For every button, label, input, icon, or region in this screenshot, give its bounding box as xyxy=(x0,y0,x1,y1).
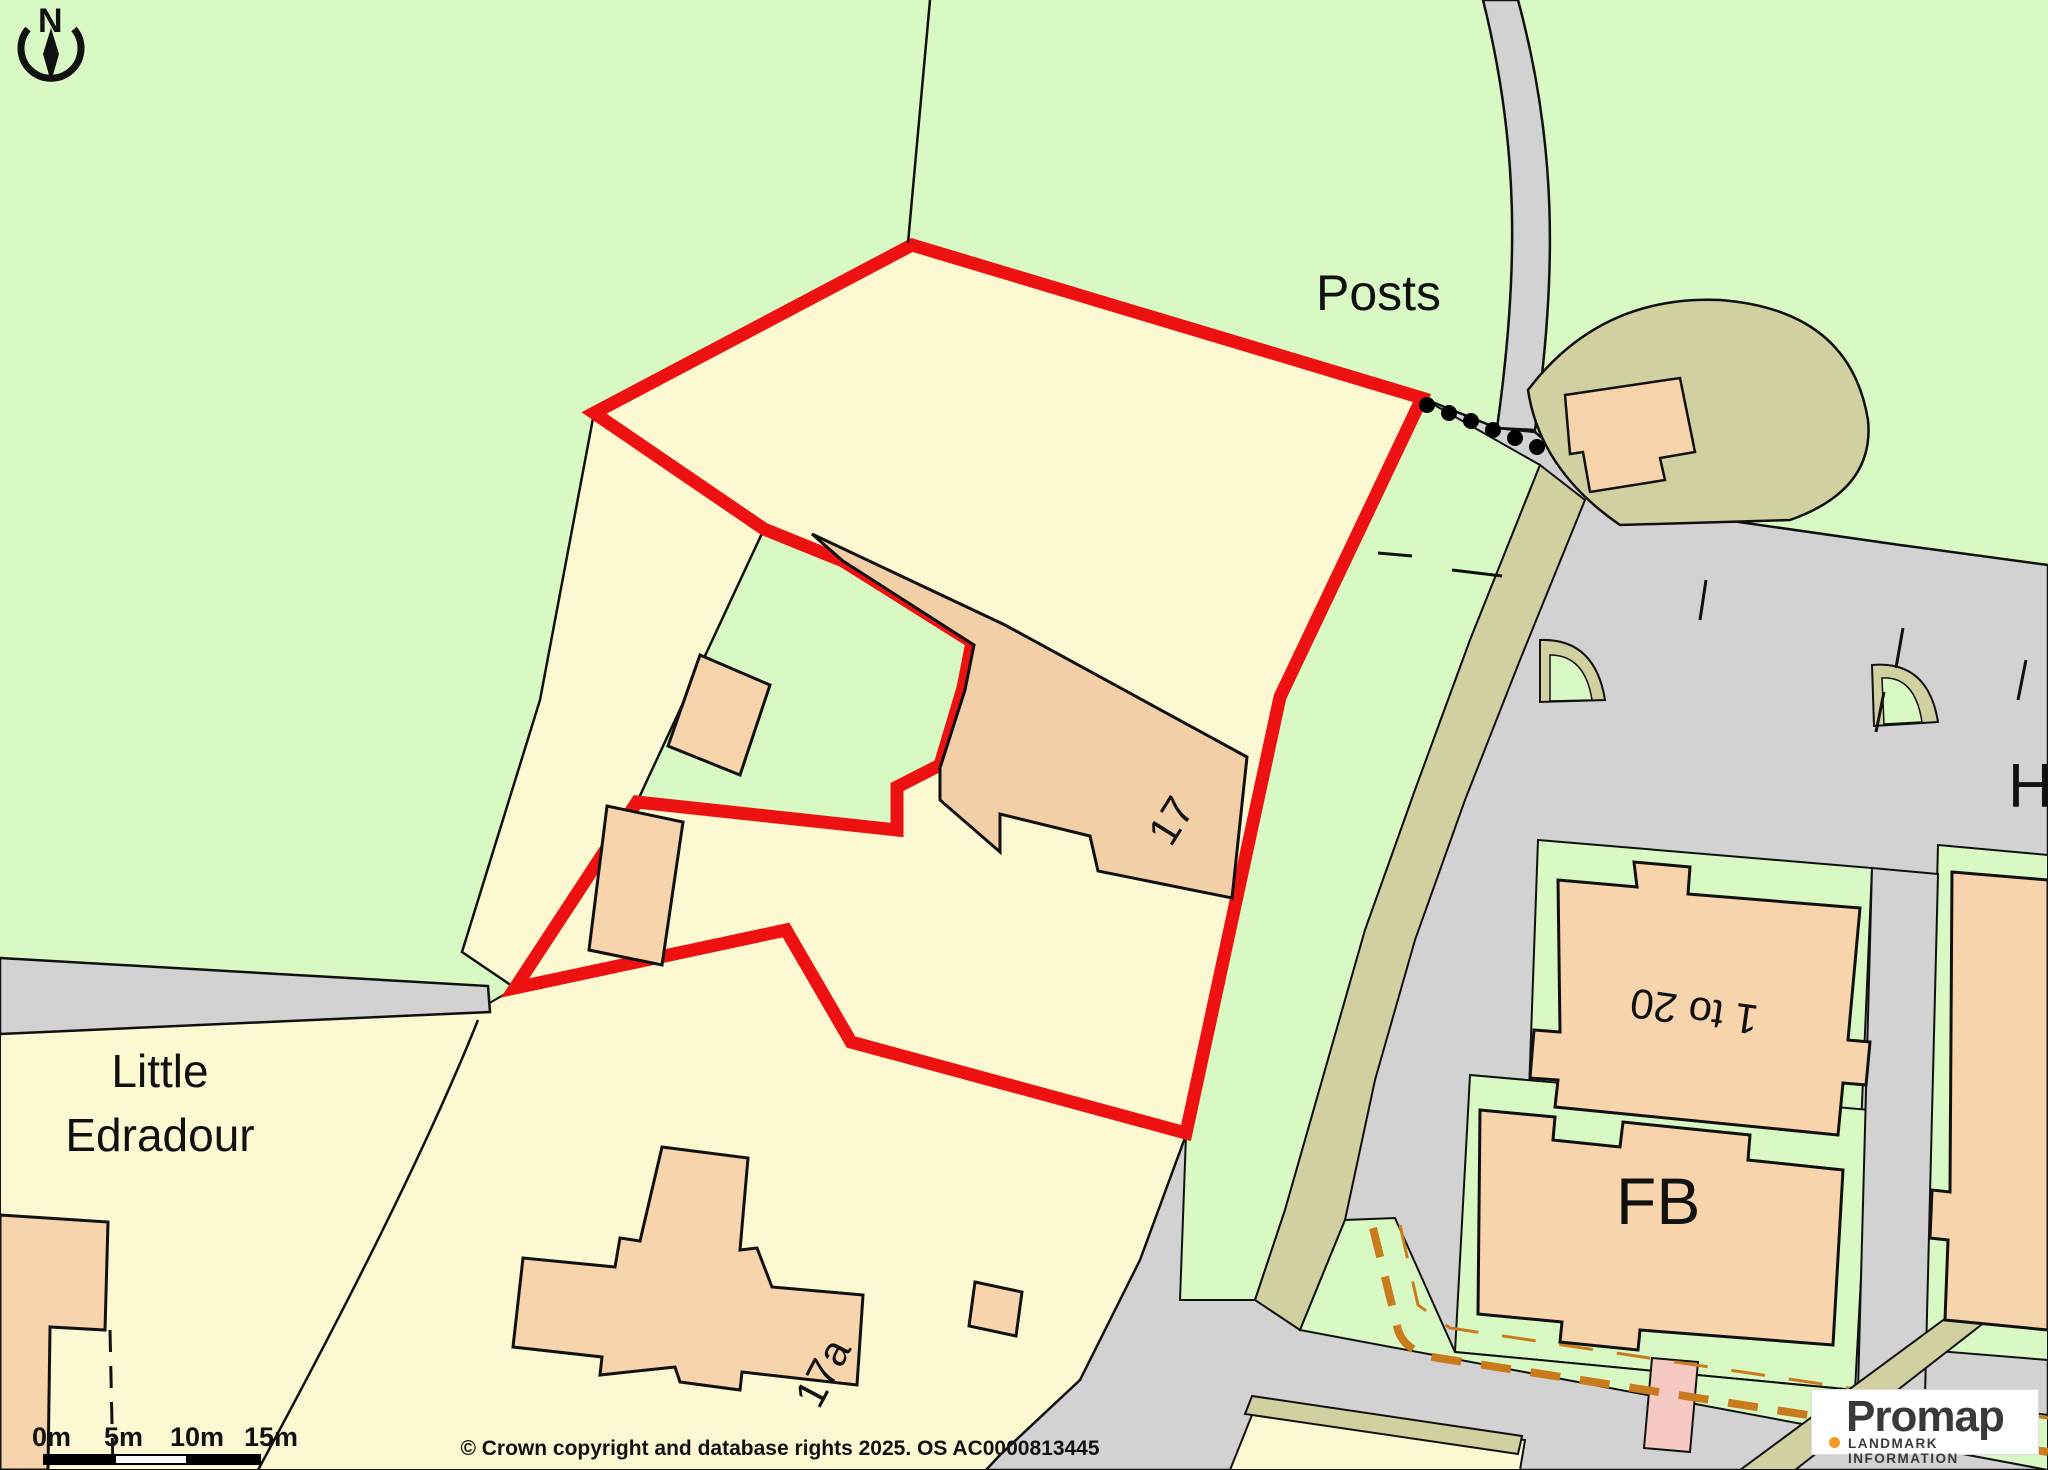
promap-brand-text: Promap xyxy=(1846,1392,2004,1442)
label-edradour: Edradour xyxy=(20,1112,300,1158)
label-posts: Posts xyxy=(1316,268,1441,318)
scale-bar: 0m 5m 10m 15m xyxy=(0,1422,320,1470)
scale-segment-3 xyxy=(186,1454,261,1465)
map-canvas xyxy=(0,0,2048,1470)
label-little: Little xyxy=(20,1048,300,1094)
scale-tick-0m: 0m xyxy=(32,1422,71,1453)
scale-tick-15m: 15m xyxy=(244,1422,298,1453)
building-small-square xyxy=(969,1282,1022,1336)
scale-tick-10m: 10m xyxy=(170,1422,224,1453)
road-corridor-east xyxy=(1858,868,1938,1395)
label-street-partial: H xyxy=(2008,756,2048,818)
scale-tick-5m: 5m xyxy=(104,1422,143,1453)
landmark-dot-icon xyxy=(1829,1437,1840,1448)
landmark-tagline: LANDMARK INFORMATION xyxy=(1848,1436,2038,1466)
footpath-pink xyxy=(1644,1358,1698,1452)
compass-north-label: N xyxy=(38,2,63,41)
promap-logo: Promap LANDMARK INFORMATION xyxy=(1812,1390,2038,1454)
scale-segment-2 xyxy=(114,1454,188,1465)
copyright-notice: © Crown copyright and database rights 20… xyxy=(430,1437,1130,1461)
north-arrow-icon: N xyxy=(6,2,96,102)
scale-segment-1 xyxy=(43,1454,116,1465)
label-little-edradour: Little Edradour xyxy=(20,1048,300,1176)
promap-site-plan: N Posts 17 17a 1 to 20 FB H Little Edrad… xyxy=(0,0,2048,1470)
label-fb: FB xyxy=(1616,1168,1700,1234)
